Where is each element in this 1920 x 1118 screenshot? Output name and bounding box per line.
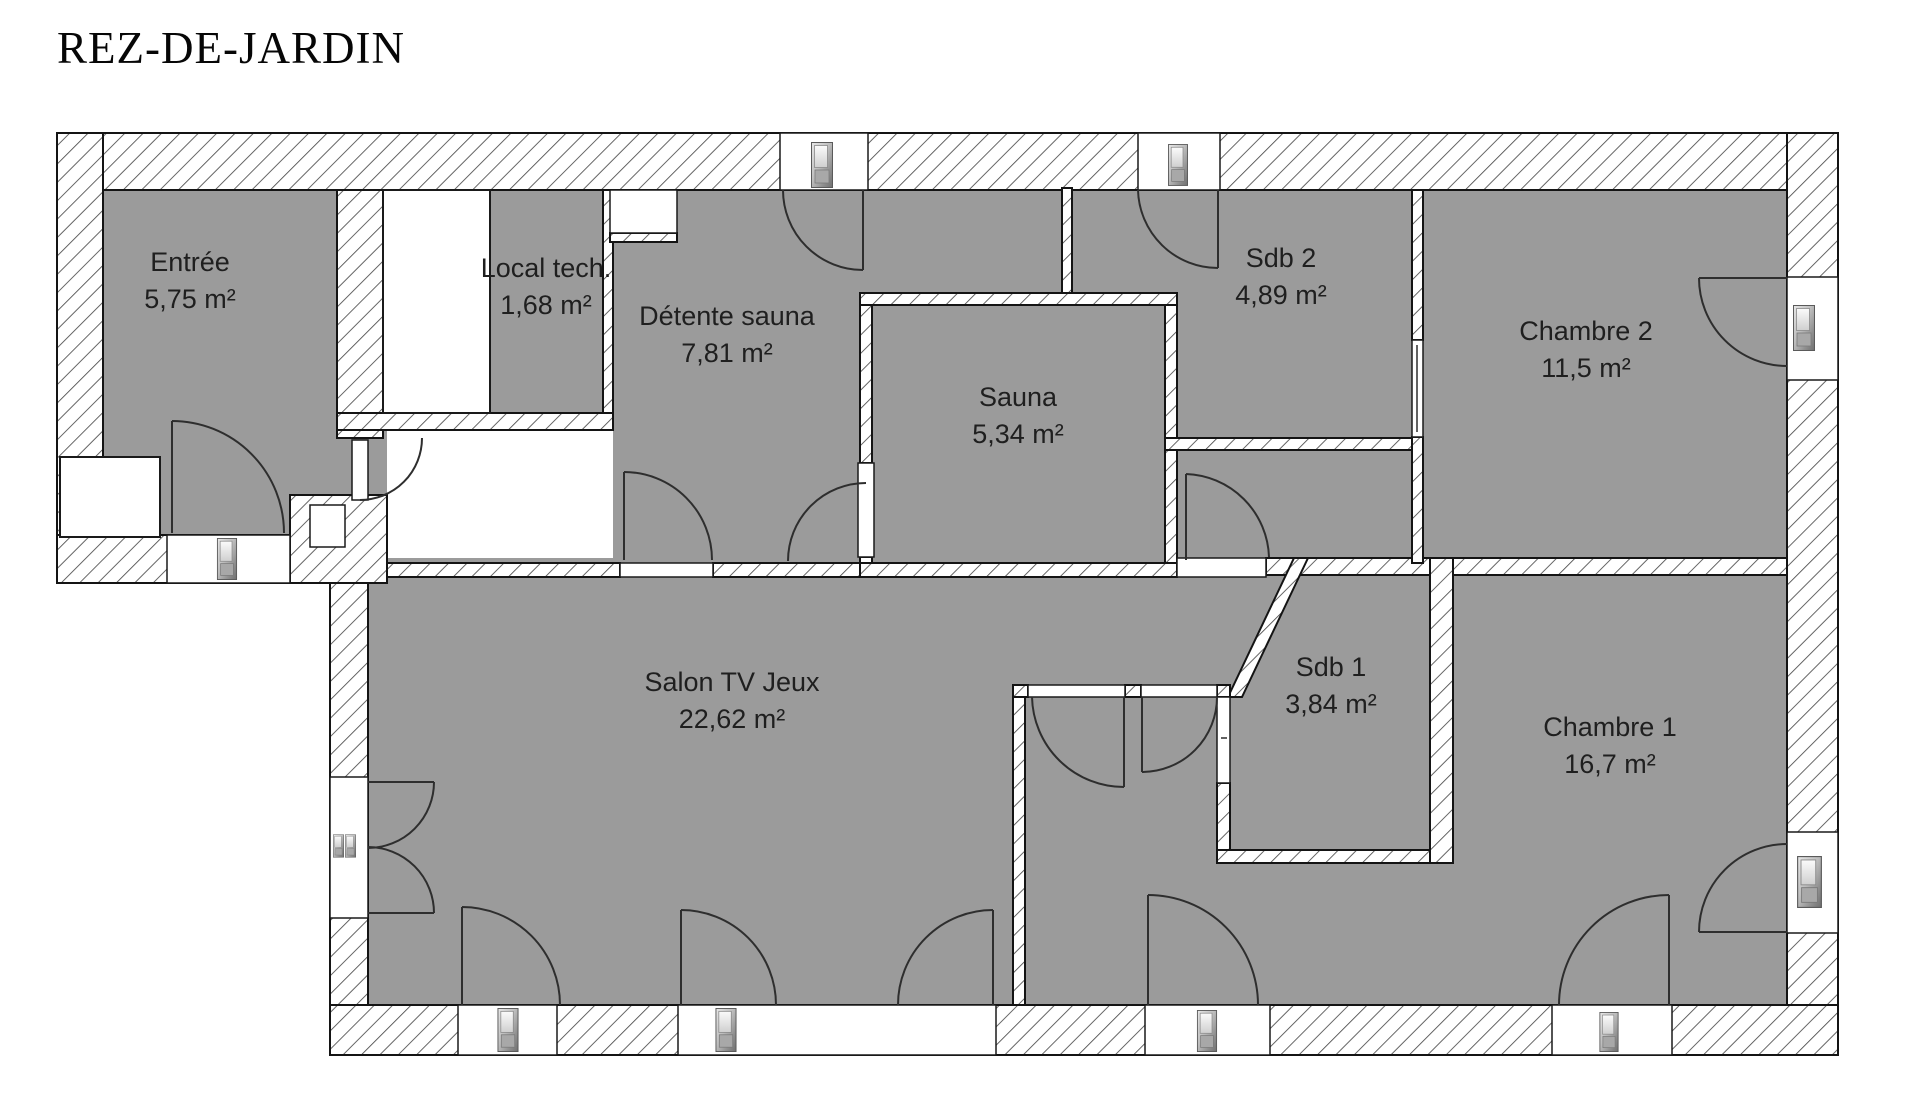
window-door-icon bbox=[1794, 306, 1815, 351]
window-door-icon bbox=[217, 538, 236, 579]
window-door-icon bbox=[1197, 1010, 1216, 1051]
window-door-icon bbox=[498, 1008, 518, 1051]
window-door-icon bbox=[716, 1008, 736, 1051]
window-door-icon bbox=[1168, 145, 1187, 186]
floor-plan: Entrée5,75 m²Local tech.1,68 m²Détente s… bbox=[0, 0, 1920, 1118]
window-door-icon bbox=[812, 143, 833, 188]
window-door-icon bbox=[1798, 857, 1822, 908]
window-door-icon bbox=[1600, 1012, 1618, 1051]
